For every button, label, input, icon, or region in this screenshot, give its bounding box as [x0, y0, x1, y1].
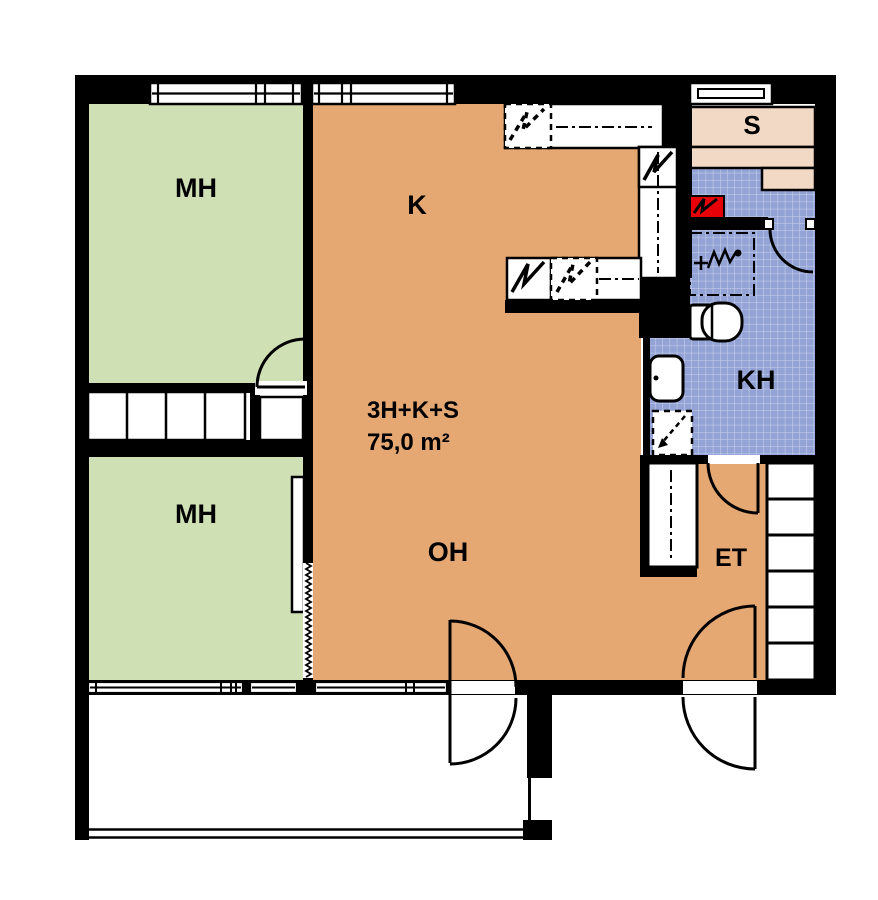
label-apartment-area: 75,0 m²: [367, 429, 450, 456]
wall-right: [815, 75, 836, 695]
balcony: [88, 778, 532, 838]
floor-plan-drawing: MH K S KH MH OH ET 3H+K+S 75,0 m²: [0, 0, 878, 900]
window-bedroom-bottom: [88, 682, 243, 693]
washbasin: [650, 356, 683, 401]
wardrobe-row: [88, 392, 245, 440]
wall-bathroom-left: [643, 338, 650, 455]
wall-left: [75, 75, 89, 840]
appliance-reservation-box: [653, 411, 692, 455]
wall-balcony-right: [527, 693, 552, 778]
label-sauna: S: [743, 110, 760, 140]
window-bedroom-bottom-small: [250, 682, 297, 693]
wall-above-bottom-bedroom: [88, 440, 313, 457]
sauna-stove: [690, 196, 724, 218]
window-sauna: [690, 83, 772, 104]
label-bedroom-bottom: MH: [175, 499, 217, 529]
bedroom-bottom-floor: [88, 457, 303, 680]
wall-kitchen-sauna-upper: [663, 104, 692, 147]
hall-cabinet: [648, 463, 697, 567]
wall-stub-closet: [250, 393, 260, 440]
label-hall: ET: [715, 544, 747, 572]
label-kitchen: K: [407, 190, 427, 220]
window-living-room: [315, 682, 447, 693]
closet-box: [260, 397, 303, 440]
toilet: [690, 303, 742, 341]
floor-plan-page: MH K S KH MH OH ET 3H+K+S 75,0 m²: [0, 0, 878, 900]
wall-kitchen-half: [505, 300, 641, 313]
bedroom-top-floor: [88, 104, 303, 383]
window-kitchen: [312, 83, 455, 104]
label-living-room: OH: [428, 537, 469, 567]
window-bedroom-top: [150, 83, 302, 104]
sauna-bench-side: [762, 168, 815, 190]
sauna-bench-mid: [686, 147, 815, 168]
wall-plumbing-block: [639, 278, 690, 338]
hall-closet-column: [767, 463, 815, 680]
label-bedroom-top: MH: [175, 173, 217, 203]
label-apartment-type: 3H+K+S: [367, 397, 459, 424]
label-bathroom: KH: [737, 365, 776, 395]
living-room-floor: [313, 300, 641, 680]
